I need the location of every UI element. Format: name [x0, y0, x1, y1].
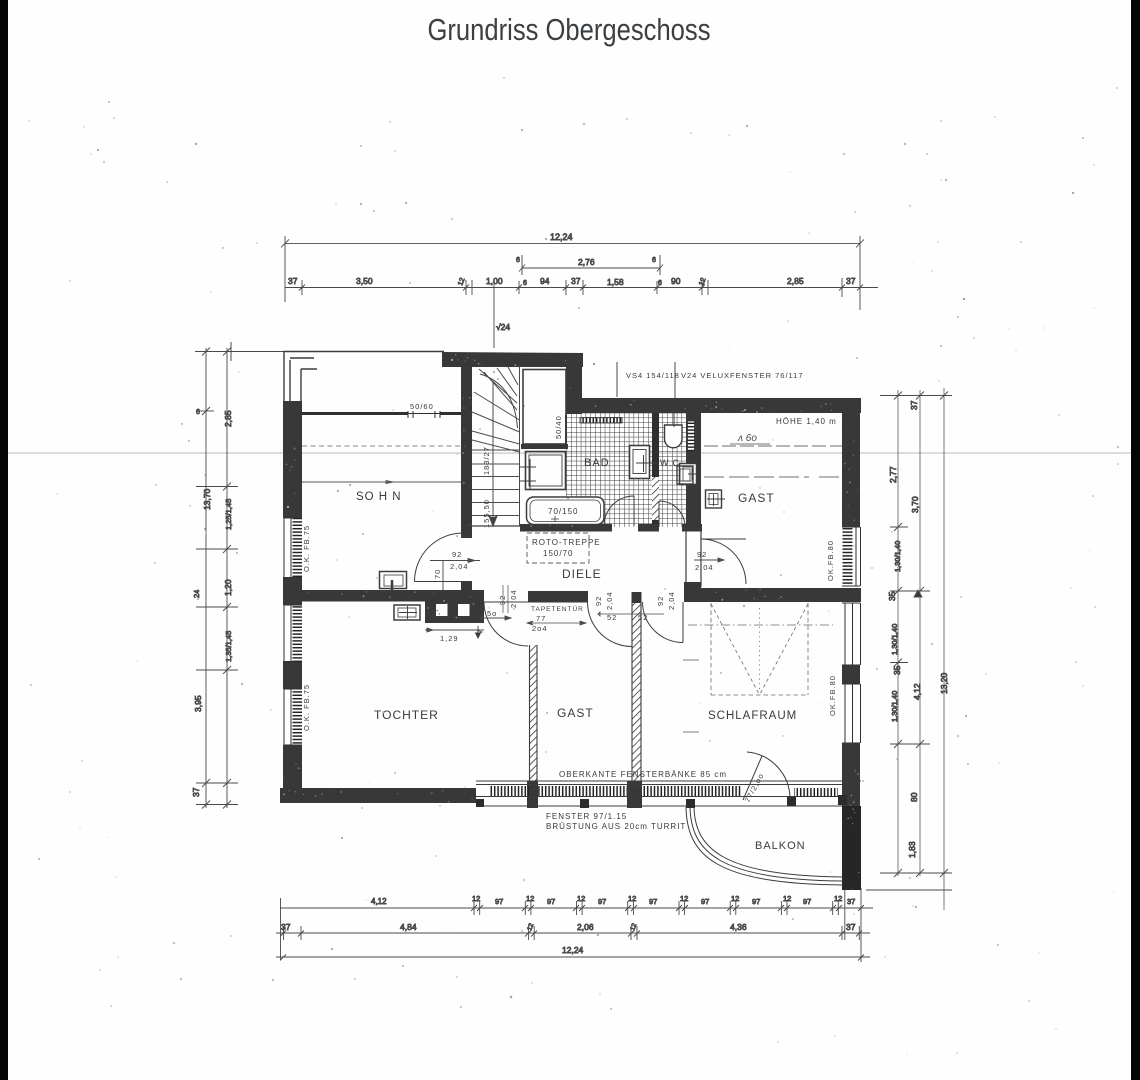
svg-text:37: 37 [909, 400, 919, 410]
svg-text:FENSTER 97/1.15: FENSTER 97/1.15 [546, 812, 627, 821]
svg-text:1,35/1,45: 1,35/1,45 [224, 631, 233, 662]
svg-text:SO H N: SO H N [356, 491, 402, 503]
svg-text:2,77: 2,77 [888, 466, 898, 483]
svg-text:12,24: 12,24 [550, 232, 573, 242]
svg-text:5o: 5o [487, 609, 497, 618]
svg-text:37: 37 [846, 276, 856, 286]
svg-text:ʌ 6o: ʌ 6o [737, 433, 757, 444]
svg-text:6: 6 [658, 280, 662, 287]
svg-text:12: 12 [526, 894, 534, 903]
svg-text:97: 97 [701, 897, 709, 906]
svg-text:35: 35 [892, 665, 902, 675]
svg-text:12: 12 [680, 894, 688, 903]
svg-text:37: 37 [846, 922, 856, 932]
svg-text:97: 97 [598, 897, 606, 906]
svg-text:O.K. FB.75: O.K. FB.75 [302, 525, 311, 572]
svg-text:1,30/1,40: 1,30/1,40 [893, 541, 902, 572]
svg-text:183/27: 183/27 [482, 446, 491, 475]
svg-text:24: 24 [192, 590, 201, 598]
svg-text:12: 12 [783, 894, 791, 903]
svg-text:97: 97 [649, 897, 657, 906]
svg-text:50/60: 50/60 [410, 402, 434, 411]
svg-text:94: 94 [540, 276, 550, 286]
svg-text:BRÜSTUNG AUS 20cm TURRIT: BRÜSTUNG AUS 20cm TURRIT [546, 822, 686, 831]
svg-text:97: 97 [803, 897, 811, 906]
svg-text:V24 VELUXFENSTER 76/117: V24 VELUXFENSTER 76/117 [681, 371, 804, 380]
svg-text:2,04: 2,04 [450, 562, 469, 571]
svg-text:97: 97 [495, 897, 503, 906]
svg-text:√24: √24 [496, 322, 510, 332]
svg-text:97: 97 [752, 897, 760, 906]
svg-text:OK.FB.80: OK.FB.80 [828, 675, 837, 716]
svg-text:50/40: 50/40 [554, 415, 563, 439]
svg-text:2,85: 2,85 [223, 410, 233, 427]
svg-text:OBERKANTE FENSTERBÄNKE 85 cm: OBERKANTE FENSTERBÄNKE 85 cm [559, 770, 727, 779]
svg-text:BALKON: BALKON [755, 840, 806, 852]
svg-text:HÖHE 1,40 m: HÖHE 1,40 m [776, 417, 837, 426]
svg-text:OK.FB.80: OK.FB.80 [826, 540, 835, 581]
svg-text:3,50: 3,50 [356, 276, 373, 286]
svg-text:13,20: 13,20 [939, 672, 949, 694]
svg-text:TOCHTER: TOCHTER [374, 708, 439, 722]
svg-text:O.K. FB.75: O.K. FB.75 [302, 684, 311, 731]
svg-text:12: 12 [472, 894, 480, 903]
svg-text:GAST: GAST [557, 706, 594, 720]
svg-text:1,83: 1,83 [907, 841, 917, 858]
svg-text:VS4 154/118: VS4 154/118 [626, 371, 680, 380]
svg-text:12,24: 12,24 [562, 945, 584, 955]
svg-text:90: 90 [671, 276, 681, 286]
svg-text:DIELE: DIELE [562, 567, 602, 581]
svg-text:97: 97 [547, 897, 555, 906]
svg-text:70/150: 70/150 [548, 507, 578, 516]
svg-text:12: 12 [731, 894, 739, 903]
svg-text:150/70: 150/70 [543, 549, 573, 558]
svg-text:2o4: 2o4 [532, 624, 548, 633]
svg-text:92: 92 [452, 550, 462, 559]
svg-text:Grundriss Obergeschoss: Grundriss Obergeschoss [428, 12, 711, 47]
svg-text:92: 92 [697, 550, 707, 559]
svg-text:4,12: 4,12 [371, 897, 387, 906]
svg-text:1,30/1,40: 1,30/1,40 [890, 691, 899, 722]
svg-text:155,50: 155,50 [482, 499, 491, 528]
svg-text:1,30/1,40: 1,30/1,40 [890, 624, 899, 655]
svg-text:35: 35 [887, 591, 897, 601]
svg-text:12: 12 [834, 894, 842, 903]
svg-text:12: 12 [577, 894, 585, 903]
svg-text:1,29: 1,29 [440, 634, 459, 643]
svg-text:2,06: 2,06 [577, 922, 594, 932]
svg-text:37: 37 [288, 276, 298, 286]
svg-text:1,20: 1,20 [223, 579, 233, 596]
svg-text:6: 6 [652, 257, 656, 264]
svg-text:37: 37 [281, 922, 291, 932]
svg-text:6: 6 [523, 280, 527, 287]
svg-text:80: 80 [909, 792, 919, 802]
svg-text:77: 77 [536, 614, 546, 623]
svg-text:2,04: 2,04 [605, 591, 614, 610]
svg-text:92: 92 [498, 595, 507, 605]
svg-text:BAD: BAD [584, 457, 610, 469]
svg-text:4,12: 4,12 [912, 683, 922, 700]
svg-text:13,70: 13,70 [202, 488, 212, 510]
svg-text:ROTO-TREPPE: ROTO-TREPPE [532, 538, 601, 547]
svg-text:37: 37 [571, 276, 581, 286]
svg-text:37: 37 [191, 787, 201, 797]
svg-text:TAPETENTÜR: TAPETENTÜR [531, 605, 584, 613]
svg-text:2,85: 2,85 [787, 276, 804, 286]
svg-text:2,04: 2,04 [667, 591, 676, 610]
svg-text:GAST: GAST [738, 491, 775, 505]
svg-text:37: 37 [847, 897, 855, 906]
svg-text:2,04: 2,04 [509, 589, 518, 608]
svg-text:2,04: 2,04 [695, 563, 714, 572]
svg-text:92: 92 [656, 596, 665, 606]
svg-text:12: 12 [628, 894, 636, 903]
svg-text:6: 6 [196, 409, 200, 416]
svg-text:1,25/1,45: 1,25/1,45 [224, 499, 233, 530]
svg-text:SCHLAFRAUM: SCHLAFRAUM [708, 710, 797, 722]
svg-text:6: 6 [516, 257, 520, 264]
svg-text:70: 70 [433, 569, 442, 579]
svg-text:2,76: 2,76 [578, 257, 595, 267]
svg-text:3,95: 3,95 [193, 695, 203, 712]
svg-text:92: 92 [594, 596, 603, 606]
svg-text:3,70: 3,70 [910, 496, 920, 513]
svg-text:4,36: 4,36 [730, 922, 747, 932]
svg-text:1,58: 1,58 [607, 277, 624, 287]
svg-text:4,84: 4,84 [400, 922, 417, 932]
